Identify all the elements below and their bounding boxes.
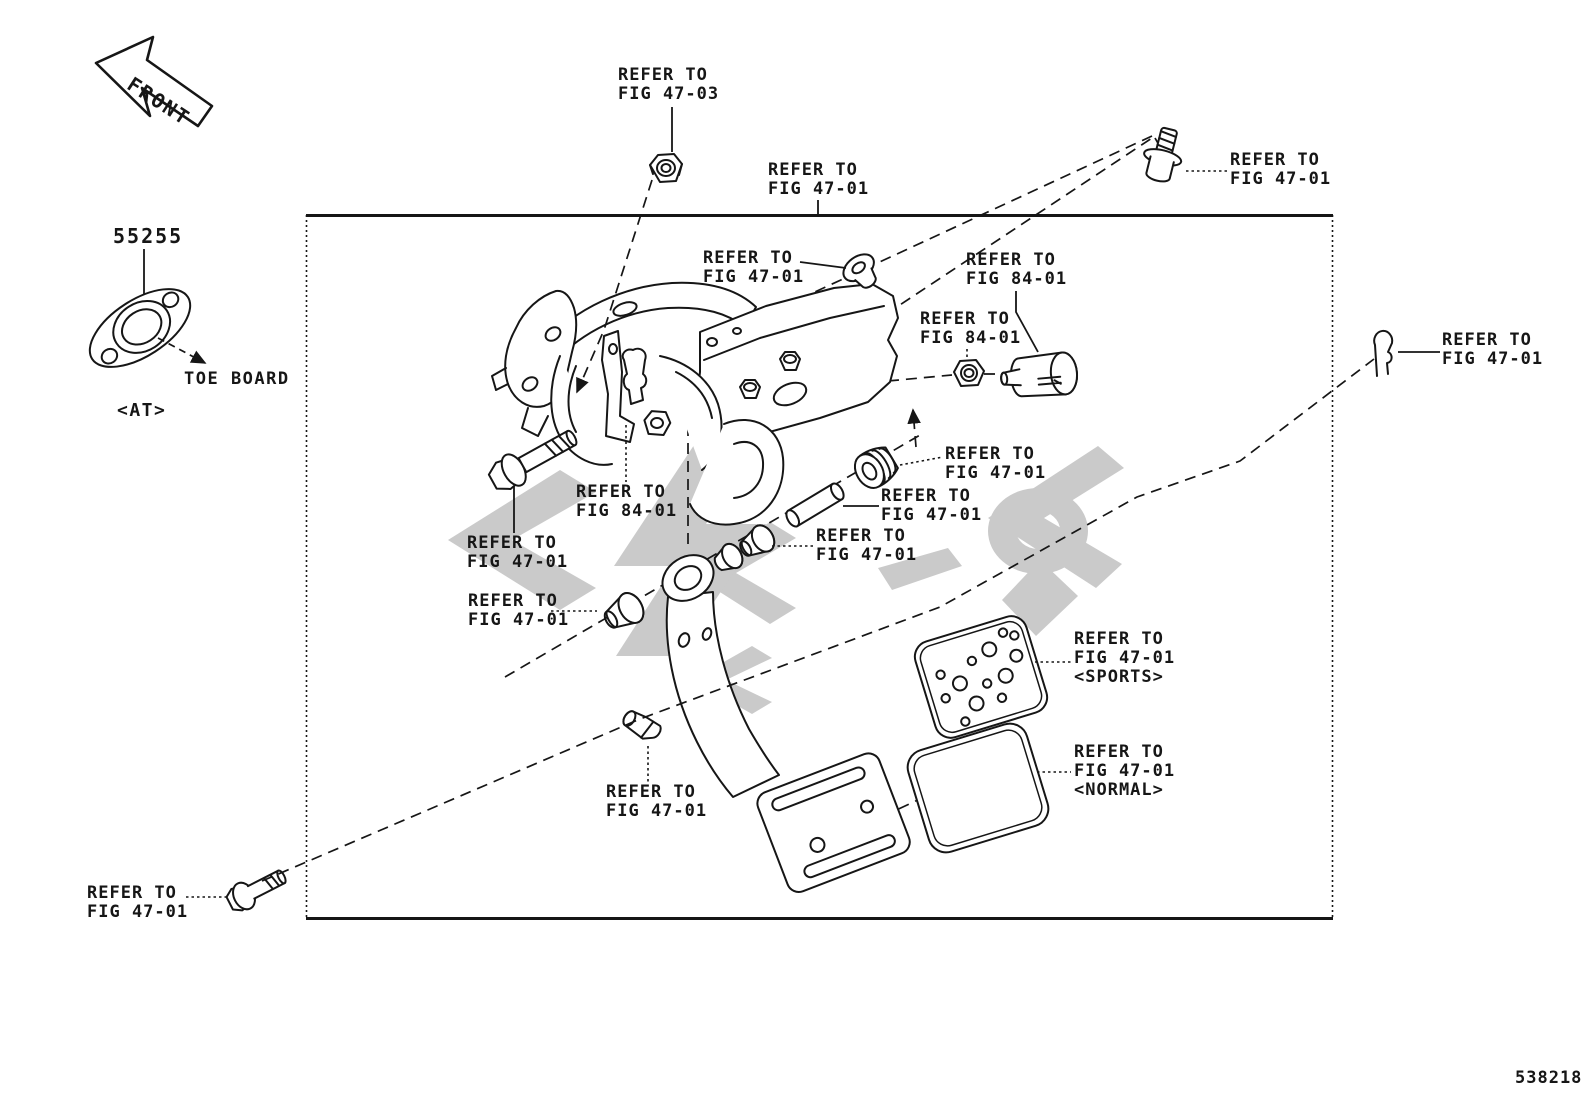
bracket-stud-1 (740, 380, 760, 398)
normal-pad-drawing (903, 719, 1053, 857)
callout-line: REFER TO (703, 249, 804, 268)
callout-line: REFER TO (468, 592, 569, 611)
callout-mount-bolt-upper: REFER TO FIG 47-01 (1230, 151, 1331, 189)
upper-bolt-drawing (1138, 125, 1188, 186)
callout-mount-bolt-lower: REFER TO FIG 47-01 (87, 884, 188, 922)
callout-line: REFER TO (768, 161, 869, 180)
callout-line: FIG 47-01 (703, 268, 804, 287)
callout-line: REFER TO (1074, 743, 1175, 762)
callout-line: FIG 84-01 (920, 329, 1021, 348)
callout-line: FIG 47-01 (1074, 762, 1175, 781)
callout-lock-nut-top: REFER TO FIG 47-03 (618, 66, 719, 104)
callout-line: FIG 47-01 (606, 802, 707, 821)
part-number-label: 55255 (113, 224, 183, 248)
callout-line: REFER TO (1442, 331, 1543, 350)
callout-line: FIG 47-01 (816, 546, 917, 565)
callout-line: FIG 47-01 (1442, 350, 1543, 369)
brake-pedal-drawing (654, 540, 913, 895)
callout-line: FIG 47-03 (618, 85, 719, 104)
callout-line: REFER TO (467, 534, 568, 553)
callout-line: REFER TO (606, 783, 707, 802)
callout-bracket-assembly: REFER TO FIG 47-01 (768, 161, 869, 199)
snap-pin-drawing (1374, 331, 1392, 376)
callout-line: FIG 47-01 (467, 553, 568, 572)
callout-line: FIG 47-01 (1230, 170, 1331, 189)
toe-board-label: TOE BOARD (184, 369, 290, 389)
callout-line: REFER TO (1230, 151, 1331, 170)
sports-pad-drawing (911, 612, 1051, 742)
callout-line: FIG 84-01 (576, 502, 677, 521)
pedal-clip-drawing (620, 707, 663, 744)
callout-line: <SPORTS> (1074, 668, 1175, 687)
callout-line: FIG 47-01 (1074, 649, 1175, 668)
callout-line: REFER TO (881, 487, 982, 506)
callout-line: FIG 47-01 (768, 180, 869, 199)
callout-bushing-lower: REFER TO FIG 47-01 (468, 592, 569, 630)
callout-snap-pin-right: REFER TO FIG 47-01 (1442, 331, 1543, 369)
callout-pedal-clip: REFER TO FIG 47-01 (606, 783, 707, 821)
leader-lines (144, 107, 1440, 897)
lower-bolt-drawing (223, 863, 290, 916)
callout-line: REFER TO (945, 445, 1046, 464)
figure-code-label: 538218 (1515, 1068, 1582, 1088)
callout-clevis: REFER TO FIG 84-01 (576, 483, 677, 521)
stop-lamp-switch-drawing (999, 351, 1078, 399)
callout-line: REFER TO (966, 251, 1067, 270)
callout-normal-pad: REFER TO FIG 47-01 <NORMAL> (1074, 743, 1175, 800)
callout-line: REFER TO (1074, 630, 1175, 649)
callout-line: REFER TO (618, 66, 719, 85)
callout-grommet: REFER TO FIG 47-01 (703, 249, 804, 287)
callout-sports-pad: REFER TO FIG 47-01 <SPORTS> (1074, 630, 1175, 687)
callout-bushing-upper: REFER TO FIG 47-01 (816, 527, 917, 565)
callout-switch: REFER TO FIG 84-01 (966, 251, 1067, 289)
callout-line: FIG 47-01 (945, 464, 1046, 483)
lock-nut-drawing (650, 154, 682, 182)
callout-line: REFER TO (576, 483, 677, 502)
callout-pivot-pin: REFER TO FIG 47-01 (881, 487, 982, 525)
gasket-55255-drawing (77, 273, 203, 382)
callout-grooved-bushing: REFER TO FIG 47-01 (945, 445, 1046, 483)
bracket-stud-2 (780, 352, 800, 370)
callout-pivot-bolt: REFER TO FIG 47-01 (467, 534, 568, 572)
parts-diagram-page: FRONT 55255 TOE BOARD <AT> 538218 REFER … (0, 0, 1592, 1099)
callout-line: FIG 84-01 (966, 270, 1067, 289)
callout-line: FIG 47-01 (468, 611, 569, 630)
callout-line: REFER TO (816, 527, 917, 546)
callout-switch-nut: REFER TO FIG 84-01 (920, 310, 1021, 348)
callout-line: REFER TO (87, 884, 188, 903)
pivot-pin-drawing (784, 481, 846, 528)
callout-line: <NORMAL> (1074, 781, 1175, 800)
callout-line: REFER TO (920, 310, 1021, 329)
at-variant-label: <AT> (117, 400, 166, 421)
callout-line: FIG 47-01 (881, 506, 982, 525)
switch-nut-drawing (954, 360, 984, 386)
callout-line: FIG 47-01 (87, 903, 188, 922)
